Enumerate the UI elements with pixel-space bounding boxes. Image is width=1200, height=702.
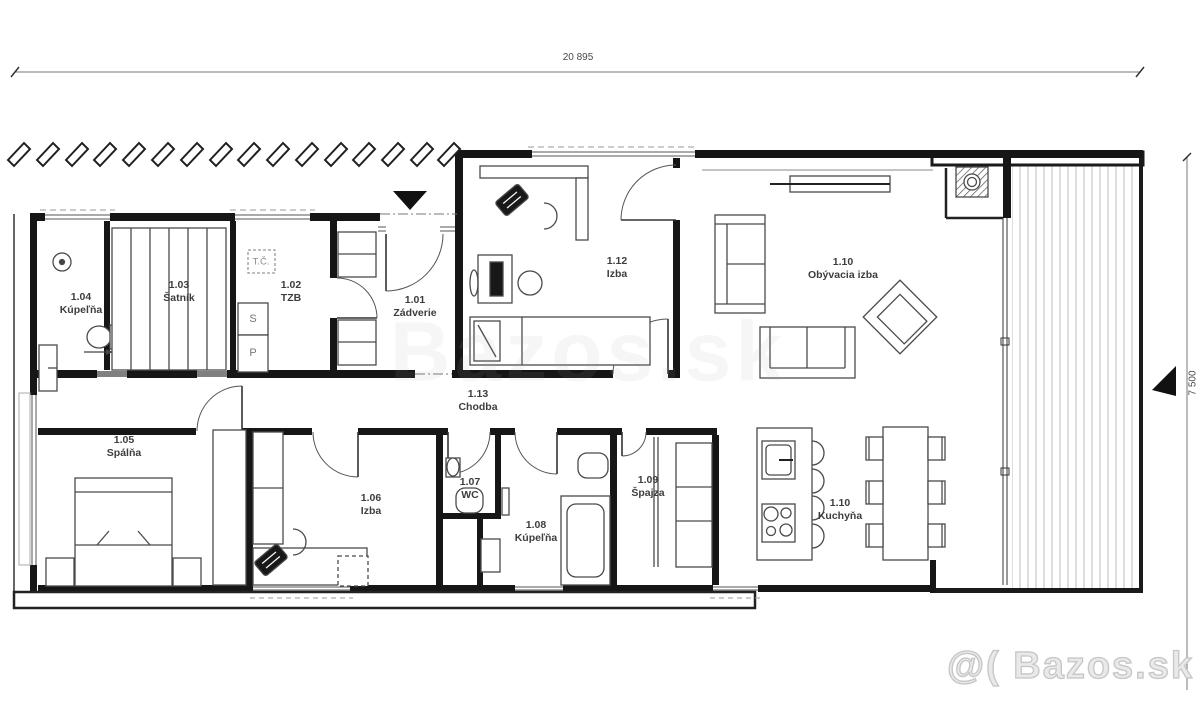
entry-storage bbox=[338, 232, 376, 365]
annotation-s: S bbox=[249, 313, 256, 325]
room-label-kupelna-104: 1.04Kúpeľňa bbox=[60, 291, 103, 317]
kitchen-furniture bbox=[757, 428, 824, 560]
annotation-heat-pump: T.Č. bbox=[253, 257, 270, 268]
room-label-chodba: 1.13Chodba bbox=[458, 388, 497, 414]
slope-arrow bbox=[1152, 366, 1176, 396]
room-label-spajza: 1.09Špajza bbox=[631, 474, 664, 500]
room-label-izba-106: 1.06Izba bbox=[361, 492, 381, 518]
room-106-furniture bbox=[253, 432, 368, 586]
room-label-tzb: 1.02TZB bbox=[281, 279, 301, 305]
room-label-kuchyna: 1.10Kuchyňa bbox=[818, 497, 862, 523]
room-label-kupelna-108: 1.08Kúpeľňa bbox=[515, 519, 558, 545]
annotation-p: P bbox=[249, 347, 256, 359]
pantry-shelves bbox=[654, 437, 712, 567]
room-label-obyvacia-izba: 1.10Obývacia izba bbox=[808, 256, 878, 282]
paving-hatch-row bbox=[8, 143, 460, 166]
room-label-zadverie: 1.01Zádverie bbox=[393, 294, 436, 320]
entrance-arrow bbox=[393, 191, 427, 210]
dimension-width-label: 20 895 bbox=[563, 52, 594, 63]
bedroom-furniture bbox=[46, 430, 246, 586]
room-label-spalna: 1.05Spálňa bbox=[107, 434, 141, 460]
floorplan-page: Bazos.sk 20 895 7 500 1.04Kúpeľňa 1.03Ša… bbox=[0, 0, 1200, 702]
room-label-wc: 1.07WC bbox=[460, 476, 480, 502]
watermark-bazos: @( Bazos.sk bbox=[947, 645, 1194, 688]
room-label-satnik: 1.03Šatník bbox=[163, 279, 195, 305]
watermark-faint: Bazos.sk bbox=[390, 304, 786, 401]
dining-set bbox=[866, 427, 945, 560]
dimension-height-label: 7 500 bbox=[1188, 370, 1199, 395]
room-label-izba-112: 1.12Izba bbox=[607, 255, 627, 281]
